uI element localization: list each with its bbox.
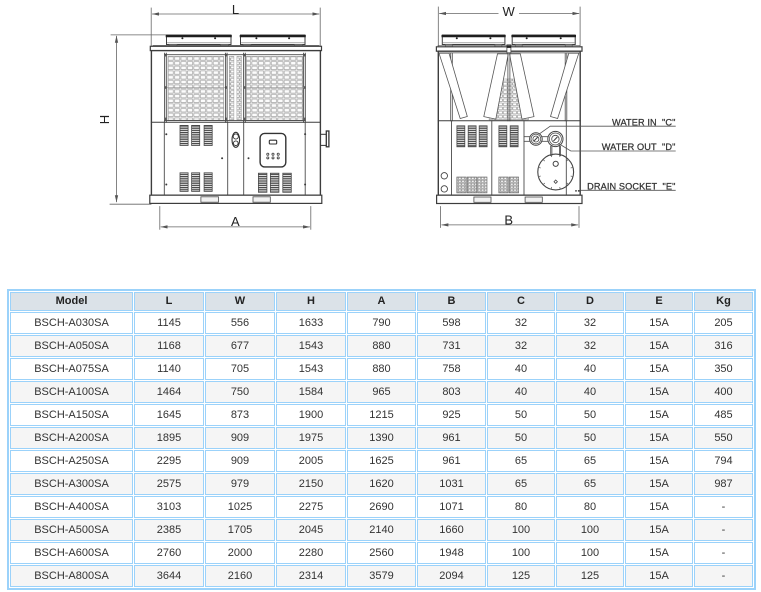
svg-text:B: B [504, 212, 513, 227]
svg-text:W: W [503, 4, 516, 19]
svg-text:DRAIN SOCKET "E": DRAIN SOCKET "E" [587, 181, 675, 191]
svg-text:WATER IN "C": WATER IN "C" [612, 117, 675, 127]
svg-text:WATER OUT "D": WATER OUT "D" [602, 142, 676, 152]
svg-text:L: L [232, 2, 239, 17]
svg-text:H: H [97, 115, 112, 124]
svg-text:A: A [231, 214, 240, 229]
